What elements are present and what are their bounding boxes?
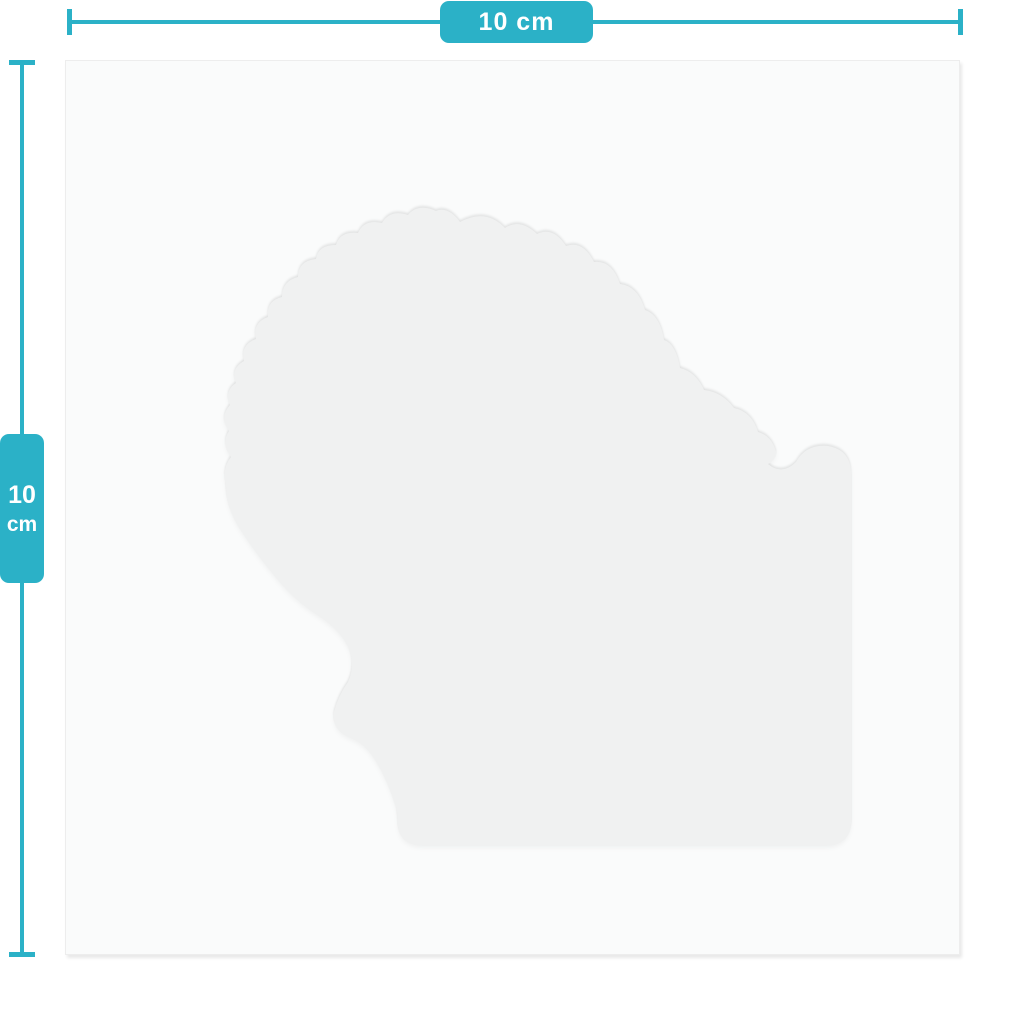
vertical-dimension-unit: cm — [7, 514, 37, 535]
ruler-end-cap-right-icon — [958, 9, 963, 35]
ruler-end-cap-bottom-icon — [9, 952, 35, 957]
horizontal-dimension-badge: 10 cm — [440, 1, 593, 43]
sticker-sheet — [65, 60, 960, 955]
ruler-end-cap-top-icon — [9, 60, 35, 65]
horizontal-dimension-label: 10 cm — [479, 8, 555, 37]
ruler-end-cap-left-icon — [67, 9, 72, 35]
vertical-dimension-badge: 10 cm — [0, 434, 44, 583]
vertical-dimension-value: 10 — [8, 483, 36, 508]
product-mockup: 10 cm 10 cm — [0, 0, 1024, 1024]
